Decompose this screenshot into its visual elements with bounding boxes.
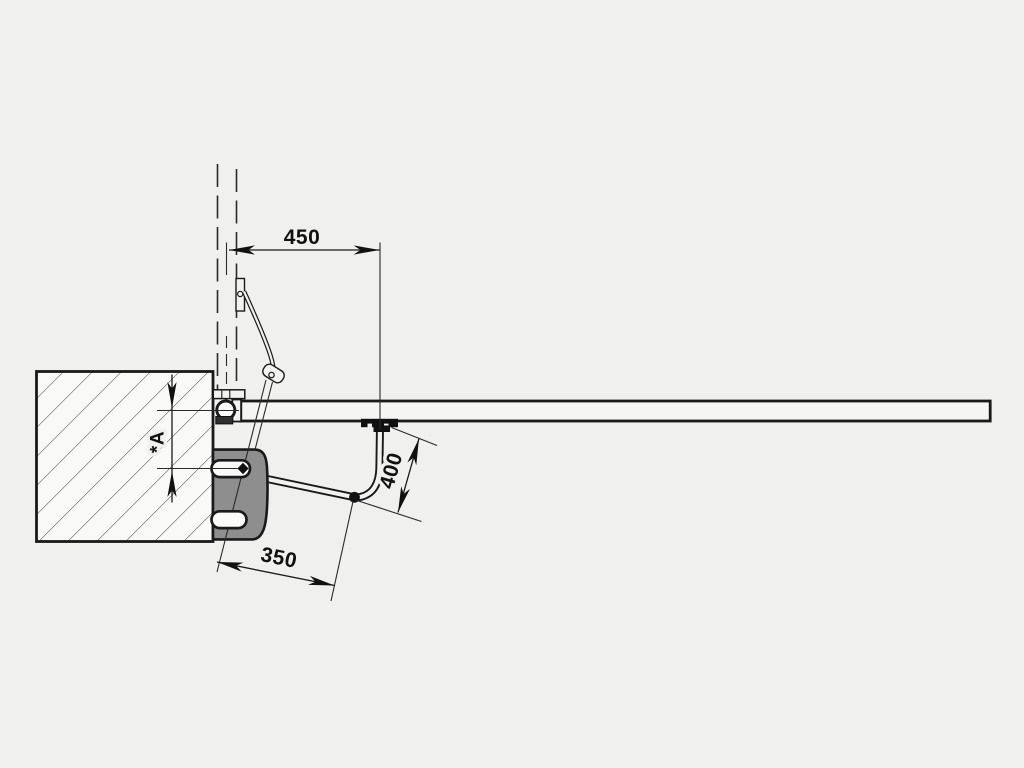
diagram-canvas: *A 450 400 350 xyxy=(0,0,1024,768)
gate-leaf-bar xyxy=(241,401,990,421)
technical-diagram: *A 450 400 350 xyxy=(0,0,1024,768)
attachment-bracket-stub xyxy=(374,426,391,433)
dim-a-label: *A xyxy=(148,431,169,453)
gate-leaf xyxy=(241,401,990,421)
gate-hinge-assembly xyxy=(213,390,245,424)
pillar-hatching xyxy=(37,372,214,542)
attachment-bracket-notch-left xyxy=(368,424,373,428)
hinge-lower-block xyxy=(216,417,233,424)
mounting-slot-lower xyxy=(212,511,247,528)
dim-450-label: 450 xyxy=(284,226,321,249)
pillar xyxy=(37,372,214,542)
hinge-top-plate xyxy=(213,390,245,399)
